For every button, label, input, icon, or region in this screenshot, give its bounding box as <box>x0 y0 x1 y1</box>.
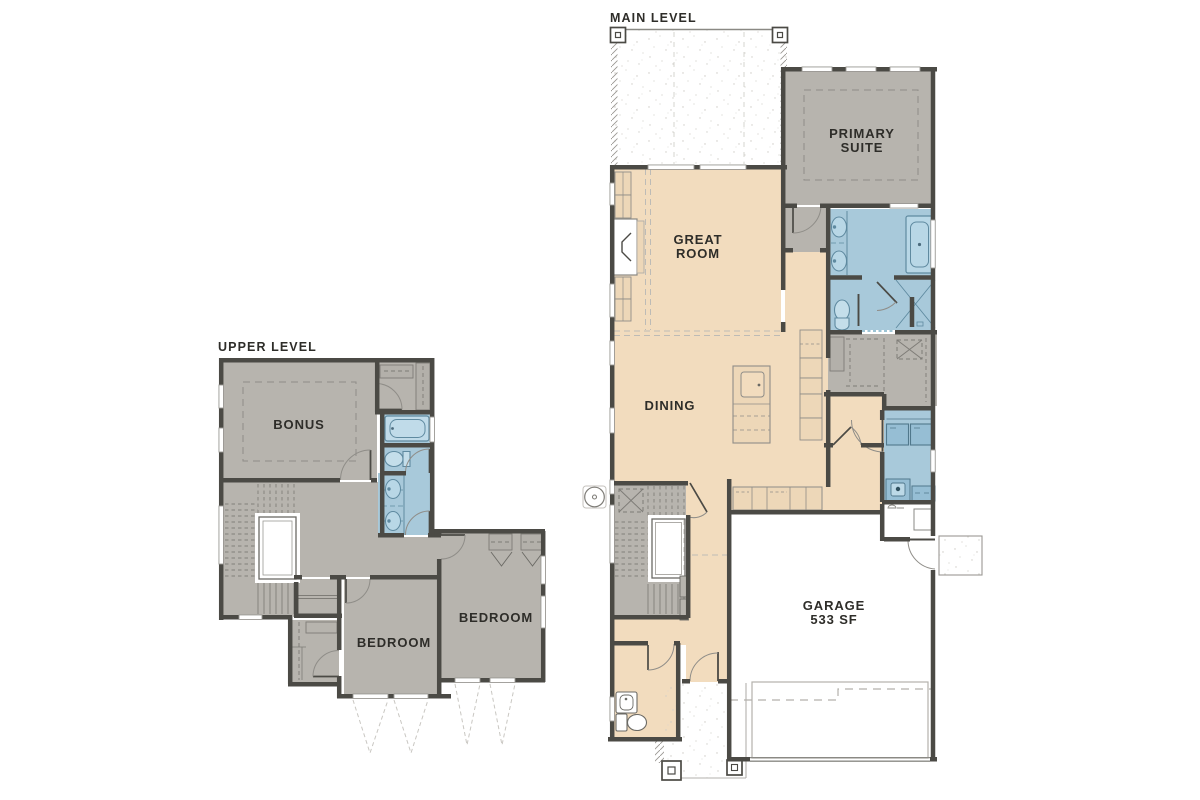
svg-text:533 SF: 533 SF <box>810 612 857 627</box>
svg-text:MAIN LEVEL: MAIN LEVEL <box>610 11 697 25</box>
svg-text:PRIMARY: PRIMARY <box>829 126 895 141</box>
svg-text:GREAT: GREAT <box>673 232 722 247</box>
svg-text:BONUS: BONUS <box>273 417 324 432</box>
svg-text:UPPER LEVEL: UPPER LEVEL <box>218 340 317 354</box>
svg-text:BEDROOM: BEDROOM <box>459 610 533 625</box>
svg-text:BEDROOM: BEDROOM <box>357 635 431 650</box>
svg-text:ROOM: ROOM <box>676 246 720 261</box>
svg-text:DINING: DINING <box>645 398 696 413</box>
svg-text:GARAGE: GARAGE <box>803 598 865 613</box>
svg-text:SUITE: SUITE <box>841 140 884 155</box>
